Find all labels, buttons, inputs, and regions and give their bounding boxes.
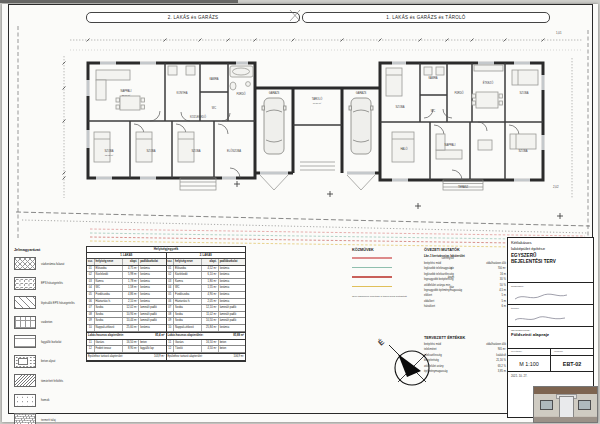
room-label-terasz: TERASZ xyxy=(458,185,469,189)
room-label-etkezo: ÉTKEZŐ xyxy=(483,80,493,85)
drawing-title-label: rajz megnevezése: xyxy=(511,329,590,331)
legend-title: Jelmagyarázat xyxy=(14,248,88,252)
project-section: Kétlakásos lakóépület építése EGYSZERŰ B… xyxy=(508,238,593,282)
table-row: 09Szoba10,50 m²laminált padló xyxy=(167,318,246,325)
drawing-title-section: rajz megnevezése: Földszinti alaprajz xyxy=(508,326,593,348)
scanned-drawing-sheet: 2. LAKÁS és GARÁZS 1. LAKÁS és GARÁZS és… xyxy=(0,0,600,424)
north-label: É xyxy=(376,337,386,347)
total-row: Épülethez tartozó alapterület:106,9 m² xyxy=(167,353,246,361)
client-label: megrendelő: xyxy=(511,285,590,287)
project-photo xyxy=(533,386,598,423)
scale-value: M 1:100 xyxy=(508,356,550,371)
utility-line-icon xyxy=(352,257,392,258)
designer-signature xyxy=(511,314,571,323)
room-label-szoba3: SZOBA xyxy=(192,149,201,153)
room-label-szoba1: SZOBA xyxy=(105,149,114,153)
schedule-half-2: 2. LAKÁS ssz.helyiség neve alapt.padlóbu… xyxy=(166,253,246,361)
table-row: 08Szoba11,02 m²laminált padló xyxy=(167,312,246,319)
room-label-wc: WC xyxy=(212,106,216,110)
car-icon xyxy=(262,98,373,154)
hatch-swatch-icon xyxy=(14,374,36,387)
table-row: 05Fürdőszoba4,86 m²kerámia xyxy=(87,292,166,299)
photo-roof xyxy=(534,387,597,394)
table-row: 04WC1,55 m²kerámia xyxy=(167,285,246,292)
table-row: 11Garázs16,50 m²beton xyxy=(167,340,246,347)
designer-label: tervező: xyxy=(511,307,590,309)
room-labels: NAPPALI 25,60 m² KONYHA KAMRA WC FÜRDŐ S… xyxy=(105,76,529,189)
room-label-eloszoba: ELŐSZOBA xyxy=(227,148,241,153)
legend-item: vázkerámia falazat xyxy=(14,257,88,270)
table-row: 03Kamra1,78 m²kerámia xyxy=(87,279,166,286)
zoning-subtitle: Lke-1 kertvárosias lakóterület xyxy=(424,254,506,258)
table-row: 10Nappali+étkező25,60 m²kerámia xyxy=(87,325,166,332)
photo-ground xyxy=(534,417,597,422)
legend-item: homok xyxy=(14,394,88,407)
legend-items: vázkerámia falazat EPS hőszigetelés lépé… xyxy=(14,257,88,424)
legend-item: tömörített feltöltés xyxy=(14,374,88,387)
room-label-wc2: WC xyxy=(431,109,435,113)
room-schedule-table: Helyiségjegyzék 1. LAKÁS ssz.helyiség ne… xyxy=(86,246,246,362)
legend-item: termett talaj xyxy=(14,413,88,424)
legend-item: lépésálló EPS hőszigetelés xyxy=(14,296,88,309)
sum-row: Lakás hasznos alapterülete:85,4 m² xyxy=(87,332,166,340)
utility-line-icon xyxy=(352,276,392,277)
caption-row: méretarány rajzszám xyxy=(508,348,593,355)
table-row: 06Háztartási h.2,10 m²kerámia xyxy=(87,299,166,306)
table-row: 08Szoba10,94 m²laminált padló xyxy=(87,312,166,319)
number-caption: rajzszám xyxy=(550,349,593,355)
room-label-szoba6: SZOBA xyxy=(519,149,528,153)
hatch-swatch-icon xyxy=(14,394,36,407)
porches-steps xyxy=(180,162,483,190)
schedule-half-1: 1. LAKÁS ssz.helyiség neve alapt.padlóbu… xyxy=(87,253,166,361)
room-label-szoba4: SZOBA xyxy=(396,105,405,109)
dim-note-top: 1,01 xyxy=(556,31,562,35)
scale-caption: méretarány xyxy=(508,349,550,355)
table-row: 07Szoba12,02 m²laminált padló xyxy=(87,305,166,312)
schedule-rows: 01Előszoba4,52 m²kerámia 02Közlekedő6,10… xyxy=(167,266,246,332)
hatch-swatch-icon xyxy=(14,316,36,329)
table-row: 12Tároló4,50 m²beton xyxy=(167,346,246,353)
north-arrow: É xyxy=(376,337,429,385)
survey-markers xyxy=(234,181,563,219)
table-row: 09Szoba10,44 m²laminált padló xyxy=(87,318,166,325)
designer-section: tervező: xyxy=(508,304,593,326)
table-row: 02Közlekedő5,98 m²kerámia xyxy=(87,272,166,279)
utility-line-icon xyxy=(352,267,392,268)
photo-window-left xyxy=(540,400,553,410)
hatch-swatch-icon xyxy=(14,355,36,368)
sum-row: Lakás hasznos alapterülete:85,88 m² xyxy=(167,332,246,340)
schedule-extras: 11Garázs16,50 m²beton 12Fedett terasz8,9… xyxy=(87,340,166,353)
room-label-garazs1: GARÁZS xyxy=(269,91,280,95)
legend-item: fagyálló burkolat xyxy=(14,335,88,348)
room-label-garazs2: GARÁZS xyxy=(356,91,367,95)
zoning-panel: ÖVEZETI MUTATÓK Lke-1 kertvárosias lakót… xyxy=(424,248,506,310)
room-label-szoba5: SZOBA xyxy=(520,91,529,95)
hatch-swatch-icon xyxy=(14,413,36,424)
client-signature xyxy=(511,292,571,301)
total-row: Épülethez tartozó alapterület:103,9 m² xyxy=(87,353,166,361)
room-label-konyha: KONYHA xyxy=(177,91,188,95)
room-area-garazs: 16,50 m² xyxy=(313,102,322,105)
sheet-number: EBT-02 xyxy=(550,356,593,371)
plan-type-line2: BEJELENTÉSI TERV xyxy=(511,259,590,265)
planned-title: TERVEZETT ÉRTÉKEK xyxy=(424,336,506,340)
schedule-rows: 01Előszoba4,75 m²kerámia 02Közlekedő5,98… xyxy=(87,266,166,332)
utility-line-icon xyxy=(352,286,392,287)
legend-panel: Jelmagyarázat vázkerámia falazat EPS hős… xyxy=(14,248,88,424)
zoning-title: ÖVEZETI MUTATÓK xyxy=(424,248,506,252)
date: 2021. 10. 27. xyxy=(508,371,593,380)
room-label-kamra: KAMRA xyxy=(209,77,218,81)
table-row: 06Háztartási h.2,05 m²kerámia xyxy=(167,299,246,306)
table-row: 12Fedett terasz8,90 m²fagyálló lap xyxy=(87,346,166,353)
table-row: 05Fürdőszoba4,90 m²kerámia xyxy=(167,292,246,299)
planned-rows: beépítési módoldalhatáron álló telekmére… xyxy=(424,342,506,374)
legend-item: beton aljzat xyxy=(14,355,88,368)
schedule-extras: 11Garázs16,50 m²beton 12Tároló4,50 m²bet… xyxy=(167,340,246,353)
table-row: 04WC1,58 m²kerámia xyxy=(87,285,166,292)
table-row: 07Szoba12,10 m²laminált padló xyxy=(167,305,246,312)
room-label-furdo: FÜRDŐ xyxy=(236,91,245,96)
zoning-rows: beépítési módoldalhatáron álló legkisebb… xyxy=(424,261,506,310)
room-label-nappali: NAPPALI xyxy=(121,89,132,93)
table-row: 03Kamra1,80 m²kerámia xyxy=(167,279,246,286)
photo-window-right xyxy=(578,400,591,410)
drawing-title: Földszinti alaprajz xyxy=(511,332,590,337)
table-row: 01Előszoba4,52 m²kerámia xyxy=(167,266,246,273)
planned-values-panel: TERVEZETT ÉRTÉKEK beépítési módoldalhatá… xyxy=(424,336,506,374)
table-row: 02Közlekedő6,10 m²kerámia xyxy=(167,272,246,279)
hatch-swatch-icon xyxy=(14,257,36,270)
planned-row: építménymagasság3,85 m xyxy=(424,369,506,374)
hatch-swatch-icon xyxy=(14,277,36,290)
legend-item: EPS hőszigetelés xyxy=(14,277,88,290)
schedule-colhead: ssz.helyiség neve alapt.padlóburkolat xyxy=(87,259,166,266)
client-section: megrendelő: xyxy=(508,282,593,304)
hatch-swatch-icon xyxy=(14,296,36,309)
zoning-row: hátsókert6 m xyxy=(424,304,506,309)
room-label-tarolo: TÁROLÓ xyxy=(312,96,323,101)
room-label-szoba2: SZOBA xyxy=(147,149,156,153)
project-name-line2: lakóépület építése xyxy=(511,246,590,252)
legend-item: vasbeton xyxy=(14,316,88,329)
fold-mark-icon xyxy=(290,10,300,21)
table-row: 10Nappali+étkező25,84 m²kerámia xyxy=(167,325,246,332)
scale-number-row: M 1:100 EBT-02 xyxy=(508,355,593,371)
dim-note-mid: 2,02 xyxy=(553,185,559,189)
table-row: 11Garázs16,50 m²beton xyxy=(87,340,166,347)
table-row: 01Előszoba4,75 m²kerámia xyxy=(87,266,166,273)
room-label-kamra2: KAMRA xyxy=(428,76,437,80)
photo-door xyxy=(559,396,574,418)
room-label-furdo2: FÜRDŐ xyxy=(454,90,463,95)
room-label-nappali2: NAPPALI xyxy=(445,143,456,147)
interior-walls xyxy=(88,63,543,180)
schedule-colhead: ssz.helyiség neve alapt.padlóburkolat xyxy=(167,259,246,266)
room-label-kozlekedo: KÖZLEKEDŐ xyxy=(190,114,206,119)
hatch-swatch-icon xyxy=(14,335,36,348)
